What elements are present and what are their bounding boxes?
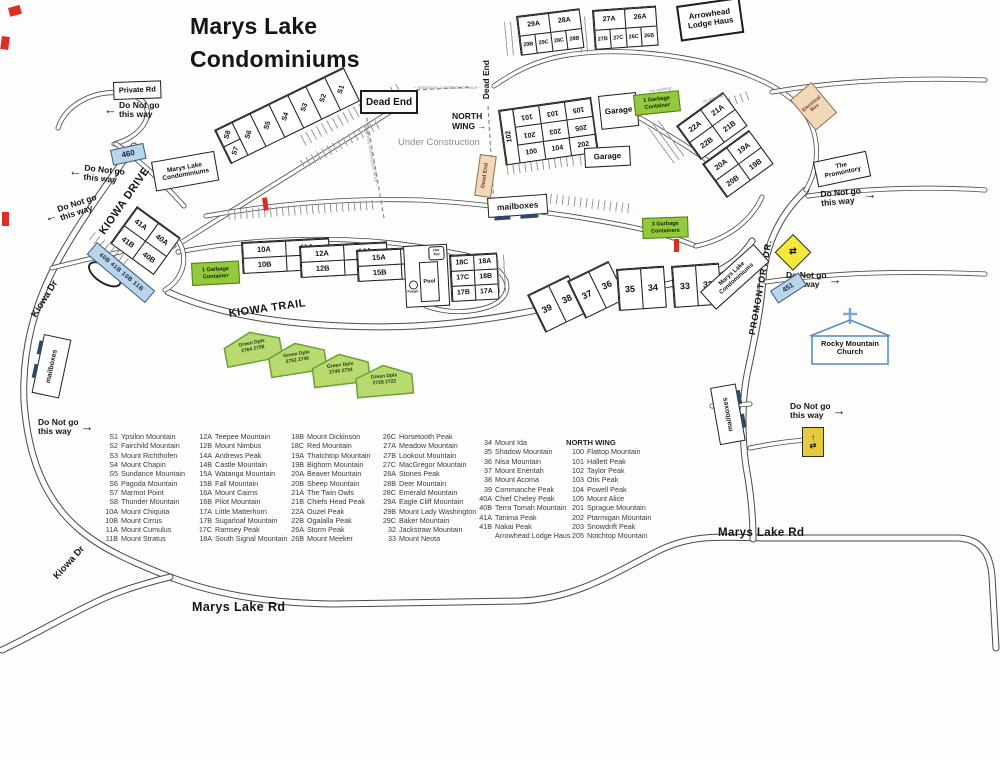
building-unit: 17B (451, 284, 476, 301)
hot-tub: Hot Tub (428, 246, 445, 261)
red-marker (674, 239, 679, 252)
garbage-containers-sign: 3 Garbage Containers (642, 216, 689, 239)
legend-entry: 27AMeadow Mountain (378, 441, 476, 450)
legend-entry: 40BTerra Tomah Mountain (474, 503, 571, 512)
legend-entry: 26BMount Meeker (286, 534, 371, 543)
legend-column-5: 34Mount Ida35Shadow Mountain36Nisa Mount… (474, 438, 571, 540)
construction-fence-label: – temporary construction fence – (414, 85, 481, 90)
building-unit: 12B (300, 259, 345, 277)
legend-column-2: 12ATeepee Mountain12BMount Nimbus14AAndr… (194, 432, 287, 544)
dead-end-sign: Dead End (360, 90, 418, 114)
legend-entry: 201Sprague Mountain (566, 503, 651, 512)
private-rd-sign: Private Rd (113, 80, 162, 100)
legend-entry: S7Marmot Point (100, 488, 185, 497)
building-unit: 10B (242, 255, 287, 273)
legend-column-6: NORTH WING 100Flattop Mountain101Hallett… (566, 438, 651, 540)
legend-entry: 41ATanima Peak (474, 512, 571, 521)
building-unit: 28B (565, 28, 584, 50)
legend-entry: 41BNakai Peak (474, 522, 571, 531)
under-construction-label: Under Construction (398, 138, 480, 149)
legend-entry: 27CMacGregor Mountain (378, 460, 476, 469)
pool-area: Hot Tub Pool Firepit (403, 244, 450, 308)
legend-entry: 40AChief Cheley Peak (474, 494, 571, 503)
building-unit: 26B (640, 25, 658, 46)
legend-entry: 34Mount Ida (474, 438, 571, 447)
church-label: Rocky Mountain Church (812, 340, 888, 357)
building-unit: 34 (639, 266, 666, 309)
legend-entry: 37Mount Enentah (474, 466, 571, 475)
legend-column-1: S1Ypsilon MountainS2Fairchild MountainS3… (100, 432, 185, 544)
legend-entry: 10AMount Chiquita (100, 506, 185, 515)
legend-entry: 18BMount Dickinson (286, 432, 371, 441)
building-cluster-17-18: 18C18A 17C18B 17B17A (449, 252, 499, 301)
legend-entry: 20BSheep Mountain (286, 478, 371, 487)
right-arrow-icon: → (833, 404, 846, 418)
legend-entry: 14AAndrews Peak (194, 451, 287, 460)
legend-entry: 28BDeer Mountain (378, 478, 476, 487)
legend-entry: 103Otis Peak (566, 475, 651, 484)
legend-entry: 11BMount Stratus (100, 534, 185, 543)
building-cluster-29-28: 29A28A 29B29C28C28B (516, 8, 584, 56)
legend-entry: 26CHorsetooth Peak (378, 432, 476, 441)
legend-entry: Arrowhead Lodge Haus (474, 531, 571, 540)
legend-entry: 203Snowdrift Peak (566, 522, 651, 531)
legend-entry: 28AStones Peak (378, 469, 476, 478)
legend-entry: S1Ypsilon Mountain (100, 432, 185, 441)
legend-entry: S5Sundance Mountain (100, 469, 185, 478)
legend-entry: 28CEmerald Mountain (378, 488, 476, 497)
two-way-arrow-icon: ⇄ (810, 442, 817, 450)
map-title: Marys Lake Condominiums (190, 10, 360, 77)
legend-entry: 39Commanche Peak (474, 484, 571, 493)
legend-entry: 32Jackstraw Mountain (378, 525, 476, 534)
legend-entry: 205Notchtop Mountain (566, 531, 651, 540)
road-label-marys-lake-rd: Marys Lake Rd (192, 600, 285, 614)
legend-entry: 17CRamsey Peak (194, 525, 287, 534)
garbage-container-sign: 1 Garbage Container (191, 260, 240, 285)
legend-entry: 100Flattop Mountain (566, 447, 651, 456)
legend-entry: 10BMount Cirrus (100, 516, 185, 525)
right-arrow-icon: → (81, 420, 94, 434)
green-duplex-sign: Green Dplx2728 2722 (354, 362, 415, 399)
legend-entry: 38Mount Acoma (474, 475, 571, 484)
legend-entry: 101Hallett Peak (566, 457, 651, 466)
legend-entry: S3Mount Richthofen (100, 451, 185, 460)
site-map: Marys Lake Condominiums Private Rd ← Do … (0, 0, 1000, 760)
left-arrow-icon: ← (43, 208, 60, 225)
legend-entry: 16AMount Cairns (194, 488, 287, 497)
legend-entry: 11AMount Cumulus (100, 525, 185, 534)
mailboxes-center: mailboxes (487, 194, 548, 218)
legend-entry: 16BPilot Mountain (194, 497, 287, 506)
building-unit: 15B (357, 263, 402, 281)
legend-entry: 15AWatanga Mountain (194, 469, 287, 478)
do-not-go-sign: Do Not go this way → (38, 418, 94, 436)
building-unit: 203 (540, 119, 570, 142)
legend-entry: 19BBighorn Mountain (286, 460, 371, 469)
legend-entry: 18ASouth Signal Mountain (194, 534, 287, 543)
legend-entry: 17ALittle Matterhorn (194, 506, 287, 515)
pool: Pool (419, 261, 440, 302)
building-unit: 17A (474, 283, 499, 300)
legend-entry: S2Fairchild Mountain (100, 441, 185, 450)
legend-entry: 21AThe Twin Owls (286, 488, 371, 497)
legend-north-wing-header: NORTH WING (566, 438, 651, 447)
legend-entry: 21BChiefs Head Peak (286, 497, 371, 506)
left-arrow-icon: ← (104, 103, 117, 117)
legend-entry: 104Powell Peak (566, 484, 651, 493)
legend-entry: 17BSugarloaf Mountain (194, 516, 287, 525)
building-unit: 205 (566, 115, 596, 138)
do-not-go-sign: Do Not go this way → (790, 402, 846, 420)
legend-entry: 27BLookout Mountain (378, 451, 476, 460)
legend-entry: 26AStorm Peak (286, 525, 371, 534)
legend-entry: 19AThatchtop Mountain (286, 451, 371, 460)
legend-entry: 18CRed Mountain (286, 441, 371, 450)
building-cluster-27-26: 27A26A 27B27C26C26B (592, 6, 659, 50)
legend-entry: 36Nisa Mountain (474, 457, 571, 466)
legend-entry: 20ABeaver Mountain (286, 469, 371, 478)
legend-entry: 29BMount Lady Washington (378, 506, 476, 515)
building-unit: 201 (514, 123, 544, 146)
legend-entry: 105Mount Alice (566, 494, 651, 503)
left-arrow-icon: ← (68, 164, 82, 179)
legend-entry: 22BOgalalla Peak (286, 516, 371, 525)
do-not-go-sign: ← Do Not go this way (104, 101, 160, 119)
legend-column-3: 18BMount Dickinson18CRed Mountain19AThat… (286, 432, 371, 544)
legend-entry: 15BFall Mountain (194, 478, 287, 487)
legend-entry: S6Pagoda Mountain (100, 478, 185, 487)
legend-entry: S8Thunder Mountain (100, 497, 185, 506)
garage-sign: Garage (584, 146, 631, 168)
legend-entry: 12BMount Nimbus (194, 441, 287, 450)
legend-entry: 22AOuzel Peak (286, 506, 371, 515)
two-way-arrow-icon: ⇄ (789, 247, 797, 257)
legend-column-4: 26CHorsetooth Peak27AMeadow Mountain27BL… (378, 432, 476, 544)
legend-entry: 33Mount Neota (378, 534, 476, 543)
legend-entry: 102Taylor Peak (566, 466, 651, 475)
legend-entry: 29CBaker Mountain (378, 516, 476, 525)
right-arrow-icon: → (829, 273, 842, 287)
legend-entry: 202Ptarmigan Mountain (566, 512, 651, 521)
church-icon (806, 302, 894, 368)
firepit-label: Firepit (407, 289, 418, 294)
building-pair-35-34: 3534 (616, 266, 667, 311)
direction-sign: ↑ ⇄ (802, 427, 824, 457)
red-marker (2, 212, 9, 226)
dead-end-vertical-label: Dead End (482, 60, 492, 102)
legend-entry: 35Shadow Mountain (474, 447, 571, 456)
parking-hatch (497, 254, 510, 293)
legend-entry: 29AEagle Cliff Mountain (378, 497, 476, 506)
north-wing-label: NORTH WING → (452, 112, 486, 131)
legend-entry: 12ATeepee Mountain (194, 432, 287, 441)
legend-entry: 14BCastle Mountain (194, 460, 287, 469)
right-arrow-icon: → (863, 187, 877, 202)
road-label-marys-lake-rd: Marys Lake Rd (718, 527, 804, 540)
legend-entry: S4Mount Chapin (100, 460, 185, 469)
